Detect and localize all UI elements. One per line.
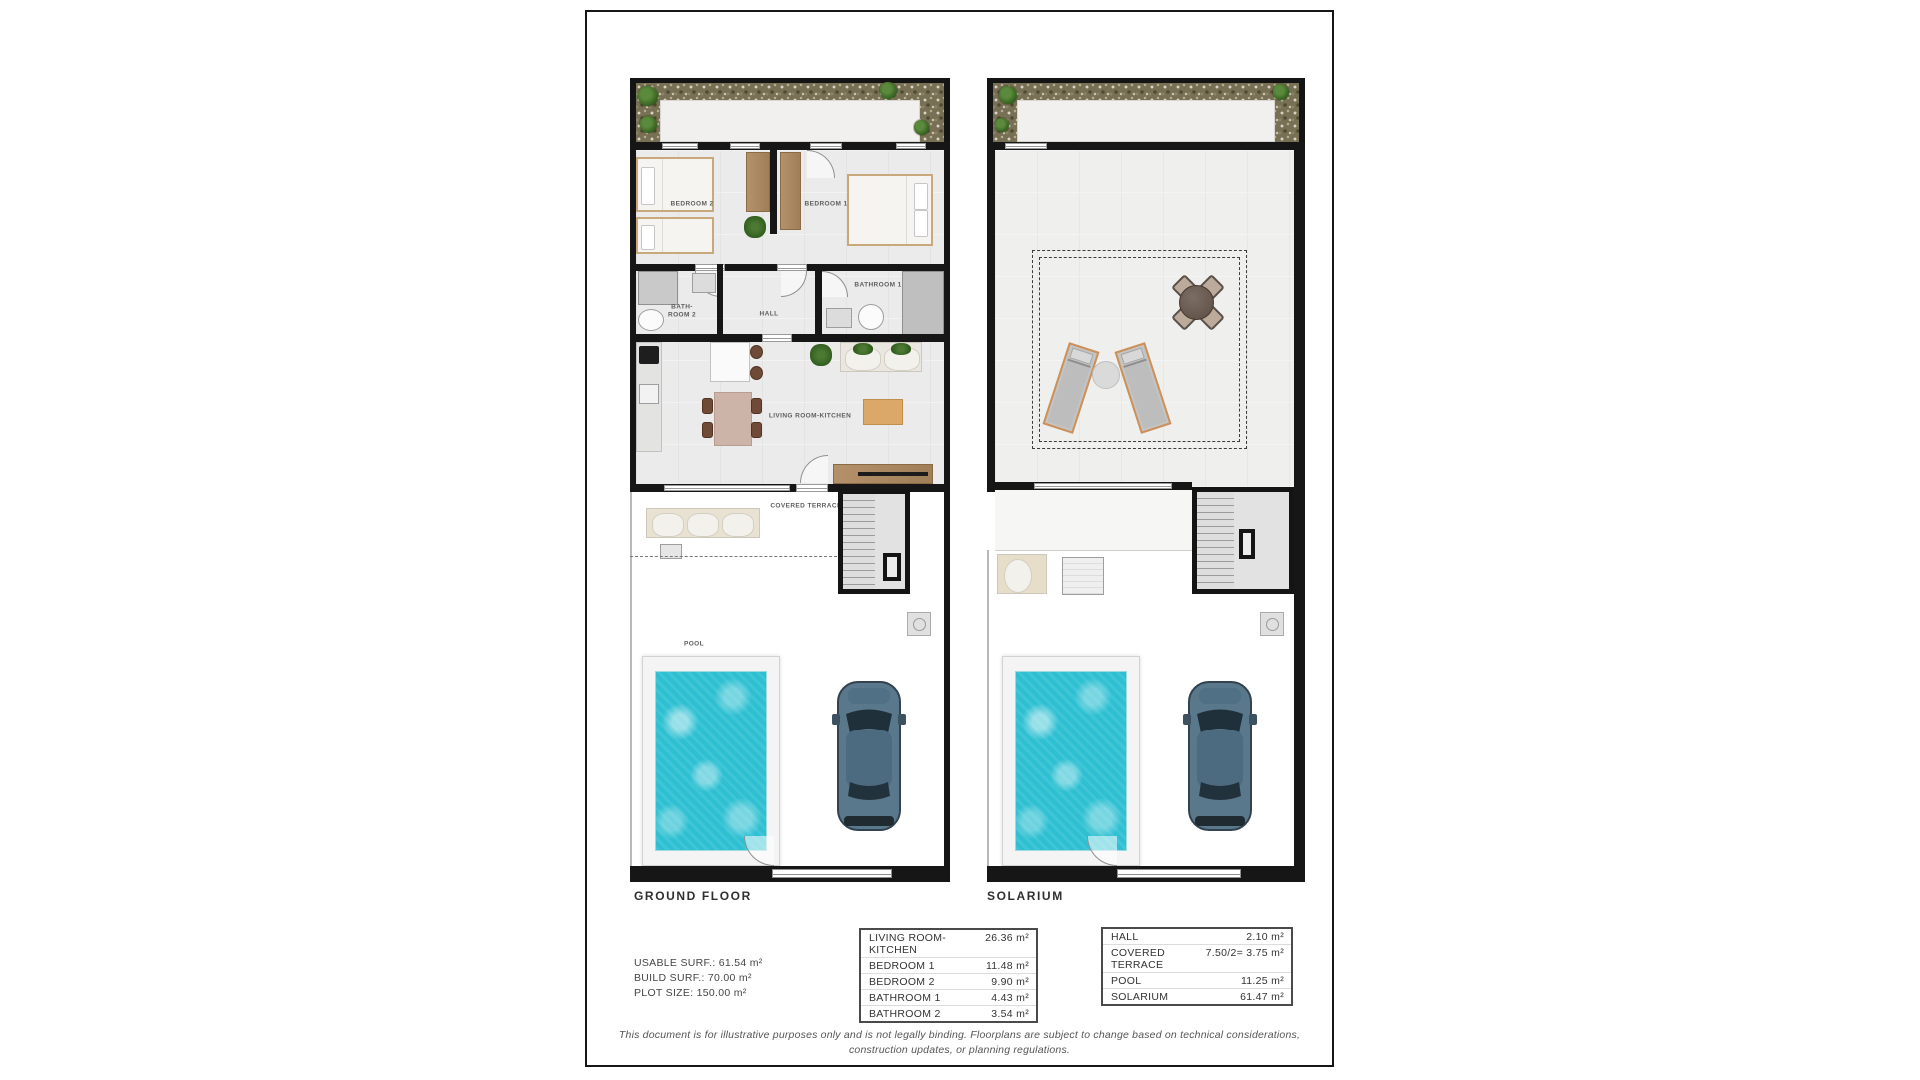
door-opening — [762, 334, 792, 342]
sink-icon — [692, 273, 716, 293]
side-table-icon — [1092, 361, 1120, 389]
stool-icon — [750, 366, 763, 380]
table-row: BEDROOM 111.48 m² — [861, 958, 1036, 974]
wall-segment — [815, 264, 822, 340]
entrance-gate — [1117, 869, 1241, 878]
plant-icon — [999, 86, 1017, 104]
shower-icon — [638, 271, 678, 305]
kitchen-island — [710, 342, 750, 382]
plant-icon — [638, 86, 658, 106]
car-icon — [832, 678, 906, 834]
chair-icon — [702, 422, 713, 438]
other-areas-table: HALL2.10 m² COVERED TERRACE7.50/2= 3.75 … — [1101, 927, 1293, 1006]
window — [896, 143, 926, 149]
doormat-icon — [1062, 557, 1104, 595]
wall-segment — [1294, 142, 1305, 882]
plant-icon — [914, 120, 929, 135]
table-row: POOL11.25 m² — [1103, 973, 1291, 989]
stool-icon — [750, 345, 763, 359]
plot-edge — [987, 550, 989, 882]
staircase — [1192, 487, 1294, 594]
room-label-living: LIVING ROOM-KITCHEN — [769, 412, 851, 420]
table-row: BEDROOM 29.90 m² — [861, 974, 1036, 990]
sofa-icon — [840, 342, 922, 372]
table-row: LIVING ROOM-KITCHEN26.36 m² — [861, 930, 1036, 958]
coffee-table-icon — [863, 399, 903, 425]
sliding-door — [664, 485, 790, 491]
room-label-bathroom2: BATH- ROOM 2 — [668, 304, 696, 319]
stove-icon — [639, 346, 659, 364]
door-opening — [777, 264, 807, 271]
double-bed-icon — [847, 174, 933, 246]
door-opening — [1005, 143, 1047, 149]
ac-unit-icon — [1260, 612, 1284, 636]
round-table-icon — [1179, 285, 1214, 320]
chair-icon — [751, 398, 762, 414]
car-icon — [1183, 678, 1257, 834]
pool-icon — [1015, 671, 1127, 851]
terrace-sofa-icon — [646, 508, 760, 538]
plot-size-line: PLOT SIZE: 150.00 m² — [634, 986, 763, 1001]
garden-paving — [660, 100, 920, 142]
plant-icon — [640, 116, 657, 133]
room-label-bedroom2: BEDROOM 2 — [671, 200, 714, 208]
disclaimer-line1: This document is for illustrative purpos… — [587, 1028, 1332, 1043]
floorplan-page: BEDROOM 2 BEDROOM 1 BATH- ROOM 2 HALL BA… — [585, 10, 1334, 1067]
room-label-pool: POOL — [684, 640, 704, 648]
lounge-chair-icon — [997, 554, 1047, 594]
table-row: HALL2.10 m² — [1103, 929, 1291, 945]
shower-icon — [902, 271, 944, 340]
room-label-bathroom1: BATHROOM 1 — [854, 281, 901, 289]
toilet-icon — [638, 309, 664, 331]
wall-segment — [717, 264, 723, 340]
wardrobe-icon — [780, 152, 801, 230]
build-surface-line: BUILD SURF.: 70.00 m² — [634, 971, 763, 986]
sink-icon — [826, 308, 852, 328]
window — [662, 143, 698, 149]
ground-floor-title: GROUND FLOOR — [634, 889, 752, 903]
usable-surface-line: USABLE SURF.: 61.54 m² — [634, 956, 763, 971]
window — [730, 143, 760, 149]
room-label-covered-terrace: COVERED TERRACE — [770, 502, 841, 510]
surface-summary: USABLE SURF.: 61.54 m² BUILD SURF.: 70.0… — [634, 956, 763, 1001]
single-bed-icon — [636, 217, 714, 254]
tv-cabinet-icon — [833, 464, 933, 484]
ground-floor-area-table: LIVING ROOM-KITCHEN26.36 m² BEDROOM 111.… — [859, 928, 1038, 1023]
pool-icon — [655, 671, 767, 851]
toilet-icon — [858, 304, 884, 330]
plant-icon — [1273, 84, 1289, 100]
wall-segment — [987, 142, 995, 492]
solarium-title: SOLARIUM — [987, 889, 1064, 903]
plot-edge — [630, 490, 632, 882]
table-row: COVERED TERRACE7.50/2= 3.75 m² — [1103, 945, 1291, 973]
table-row: SOLARIUM61.47 m² — [1103, 989, 1291, 1004]
disclaimer: This document is for illustrative purpos… — [587, 1028, 1332, 1057]
ground-floor-plan: BEDROOM 2 BEDROOM 1 BATH- ROOM 2 HALL BA… — [630, 78, 950, 882]
table-row: BATHROOM 14.43 m² — [861, 990, 1036, 1006]
wall-segment — [944, 142, 950, 882]
kitchen-sink-icon — [639, 384, 659, 404]
railing — [1034, 483, 1172, 489]
plant-icon — [880, 82, 897, 99]
plant-icon — [744, 216, 766, 238]
staircase — [838, 489, 910, 594]
window — [810, 143, 842, 149]
room-label-bedroom1: BEDROOM 1 — [805, 200, 848, 208]
solarium-plan — [987, 78, 1305, 882]
ac-unit-icon — [907, 612, 931, 636]
table-row: BATHROOM 23.54 m² — [861, 1006, 1036, 1021]
room-label-hall: HALL — [760, 310, 779, 318]
plant-icon — [810, 344, 832, 366]
plant-icon — [995, 118, 1009, 132]
door-opening — [796, 484, 828, 492]
terrace-roof — [995, 490, 1192, 551]
disclaimer-line2: construction updates, or planning regula… — [587, 1043, 1332, 1058]
chair-icon — [751, 422, 762, 438]
garden-paving — [1017, 100, 1275, 142]
entrance-gate — [772, 869, 892, 878]
roof-edge-dashed-line — [630, 556, 842, 557]
chair-icon — [702, 398, 713, 414]
wardrobe-icon — [746, 152, 770, 212]
dining-table-icon — [714, 392, 752, 446]
wall-segment — [770, 150, 777, 234]
